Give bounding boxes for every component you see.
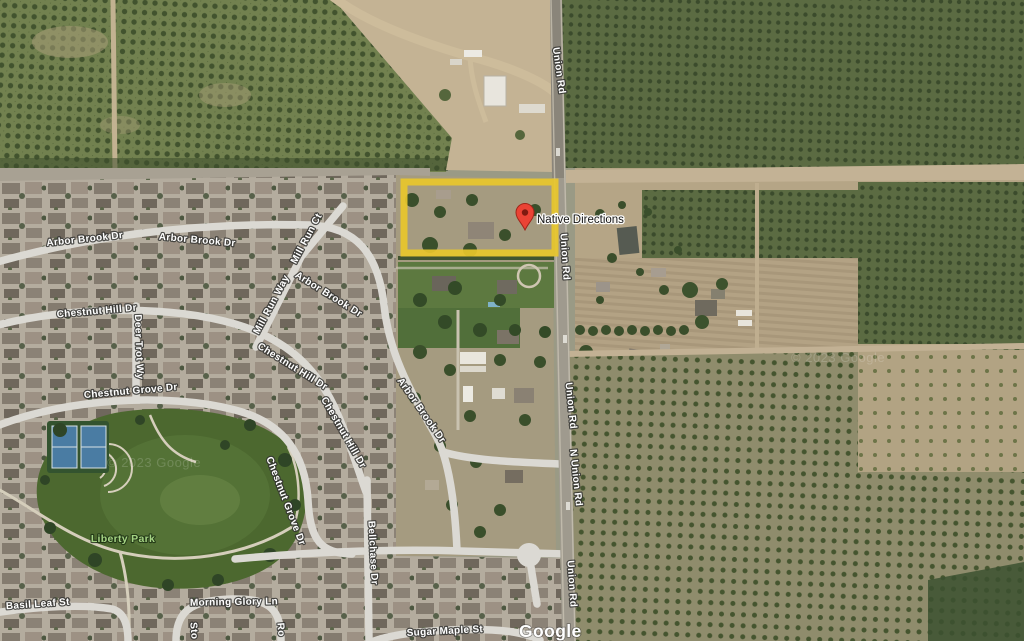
google-logo[interactable]: Google bbox=[519, 621, 582, 641]
rural-lots bbox=[396, 175, 556, 556]
watermark-right: © 2023 Google bbox=[791, 350, 885, 365]
watermark-left: © 2023 Google bbox=[107, 455, 201, 470]
street-label-morning-glory-ln: Morning Glory Ln bbox=[190, 596, 278, 609]
orchard-top-right bbox=[560, 0, 1024, 168]
property-house bbox=[468, 222, 494, 239]
street-label-deer-trot-wy: Deer Trot Wy bbox=[132, 314, 145, 380]
pin-label[interactable]: Native Directions bbox=[537, 214, 624, 226]
culdesac-bulb bbox=[517, 543, 541, 567]
orchard-south-east bbox=[566, 346, 1024, 641]
satellite-map[interactable]: © 2023 Google © 2023 Google Arbor Brook … bbox=[0, 0, 1024, 641]
park-label[interactable]: Liberty Park bbox=[91, 533, 155, 545]
farm-barn bbox=[484, 76, 506, 106]
farm-trailer bbox=[519, 104, 545, 113]
street-label-partial-left: Sto bbox=[187, 622, 199, 640]
map-canvas: © 2023 Google © 2023 Google Arbor Brook … bbox=[0, 0, 1024, 641]
street-label-partial-right: Ro bbox=[274, 622, 286, 637]
